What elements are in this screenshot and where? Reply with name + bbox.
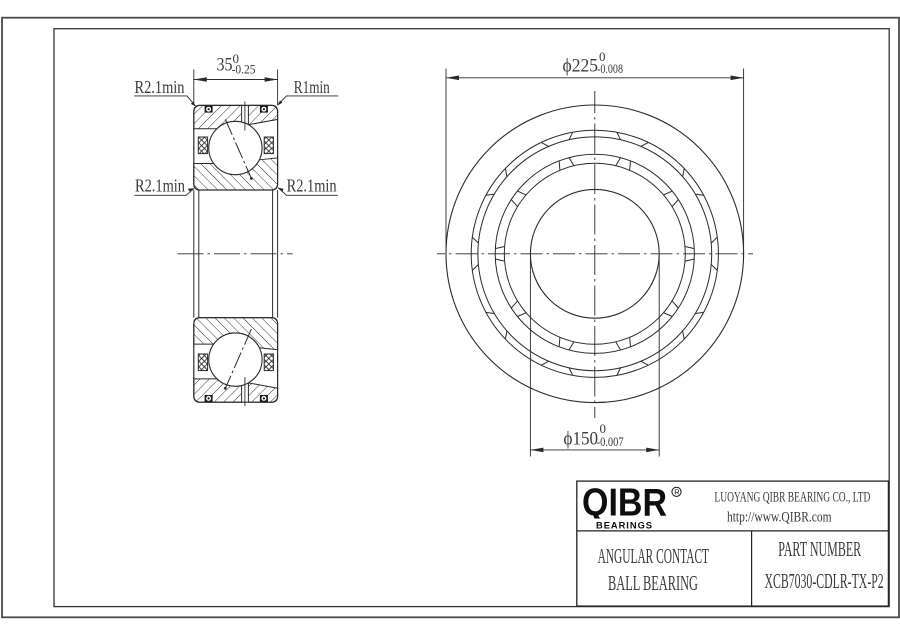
svg-text:35: 35 — [217, 54, 233, 75]
svg-text:BEARINGS: BEARINGS — [596, 520, 653, 531]
svg-text:ϕ150: ϕ150 — [564, 429, 599, 450]
svg-text:R2.1min: R2.1min — [135, 175, 185, 195]
svg-text:-0.008: -0.008 — [597, 61, 623, 76]
svg-text:-0.25: -0.25 — [232, 61, 256, 76]
svg-text:http://www.QIBR.com: http://www.QIBR.com — [727, 510, 832, 526]
svg-text:ANGULAR CONTACT: ANGULAR CONTACT — [598, 544, 709, 568]
svg-text:R2.1min: R2.1min — [287, 175, 337, 195]
svg-text:QIBR: QIBR — [582, 482, 667, 525]
svg-text:LUOYANG QIBR BEARING CO., LTD: LUOYANG QIBR BEARING CO., LTD — [714, 490, 870, 506]
svg-text:-0.007: -0.007 — [597, 434, 624, 449]
svg-text:R2.1min: R2.1min — [135, 77, 185, 97]
svg-text:PART NUMBER: PART NUMBER — [778, 537, 861, 561]
svg-text:R: R — [674, 488, 680, 497]
svg-text:XCB7030-CDLR-TX-P2: XCB7030-CDLR-TX-P2 — [765, 569, 884, 593]
svg-text:ϕ225: ϕ225 — [563, 56, 599, 77]
svg-text:BALL BEARING: BALL BEARING — [608, 571, 698, 595]
svg-text:R1min: R1min — [294, 77, 330, 97]
